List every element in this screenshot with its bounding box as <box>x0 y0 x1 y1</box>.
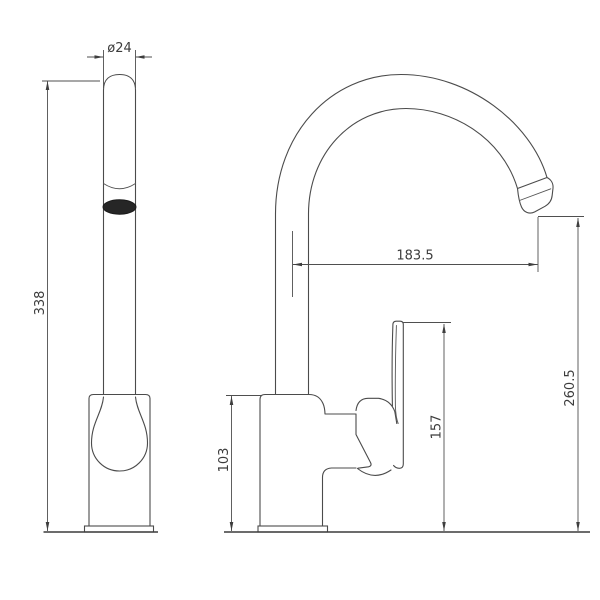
dimension-label: 157 <box>430 415 445 440</box>
front-spout-outer <box>276 75 548 395</box>
side-aerator-band <box>104 184 136 189</box>
dimension-label: 338 <box>33 291 48 316</box>
arrowhead <box>293 263 302 267</box>
front-body-lower <box>323 468 357 526</box>
dimension-overall-height: 338 <box>33 81 100 531</box>
arrowhead <box>46 81 50 90</box>
dimension-outlet-height: 260.5 <box>538 217 584 532</box>
valve-under-dome <box>358 469 392 476</box>
dimension-label: 103 <box>217 448 232 473</box>
arrowhead <box>529 263 538 267</box>
aerator-outlet <box>103 200 136 214</box>
faucet-technical-drawing: ø24 338 183.5 260.5 <box>0 0 600 600</box>
arrowhead <box>136 55 145 59</box>
side-view <box>44 75 159 533</box>
front-view <box>224 75 590 533</box>
front-body-upper <box>260 395 356 527</box>
drawing-canvas: ø24 338 183.5 260.5 <box>0 0 600 600</box>
handle-lever <box>392 321 403 468</box>
dimension-label: 260.5 <box>563 369 578 406</box>
dimension-label: 183.5 <box>396 249 433 264</box>
arrowhead <box>230 522 234 531</box>
arrowhead <box>46 522 50 531</box>
arrowhead <box>576 218 580 227</box>
handle-collar <box>356 398 397 423</box>
handle-lever-contour <box>395 326 398 424</box>
dimension-body-height: 103 <box>217 396 262 532</box>
valve-cartridge <box>356 414 371 468</box>
dimension-label: ø24 <box>107 41 132 56</box>
spout-tip <box>518 178 554 214</box>
side-base-plate <box>85 526 154 532</box>
arrowhead <box>442 324 446 333</box>
dimension-spout-reach: 183.5 <box>293 217 539 297</box>
side-spout-tube <box>104 75 136 395</box>
arrowhead <box>95 55 104 59</box>
arrowhead <box>230 396 234 405</box>
front-base-plate <box>258 526 328 532</box>
spout-tip-band-line <box>520 189 551 201</box>
side-handle-profile <box>92 397 148 471</box>
arrowhead <box>442 522 446 531</box>
arrowhead <box>576 522 580 531</box>
dimension-handle-height: 157 <box>403 323 451 532</box>
